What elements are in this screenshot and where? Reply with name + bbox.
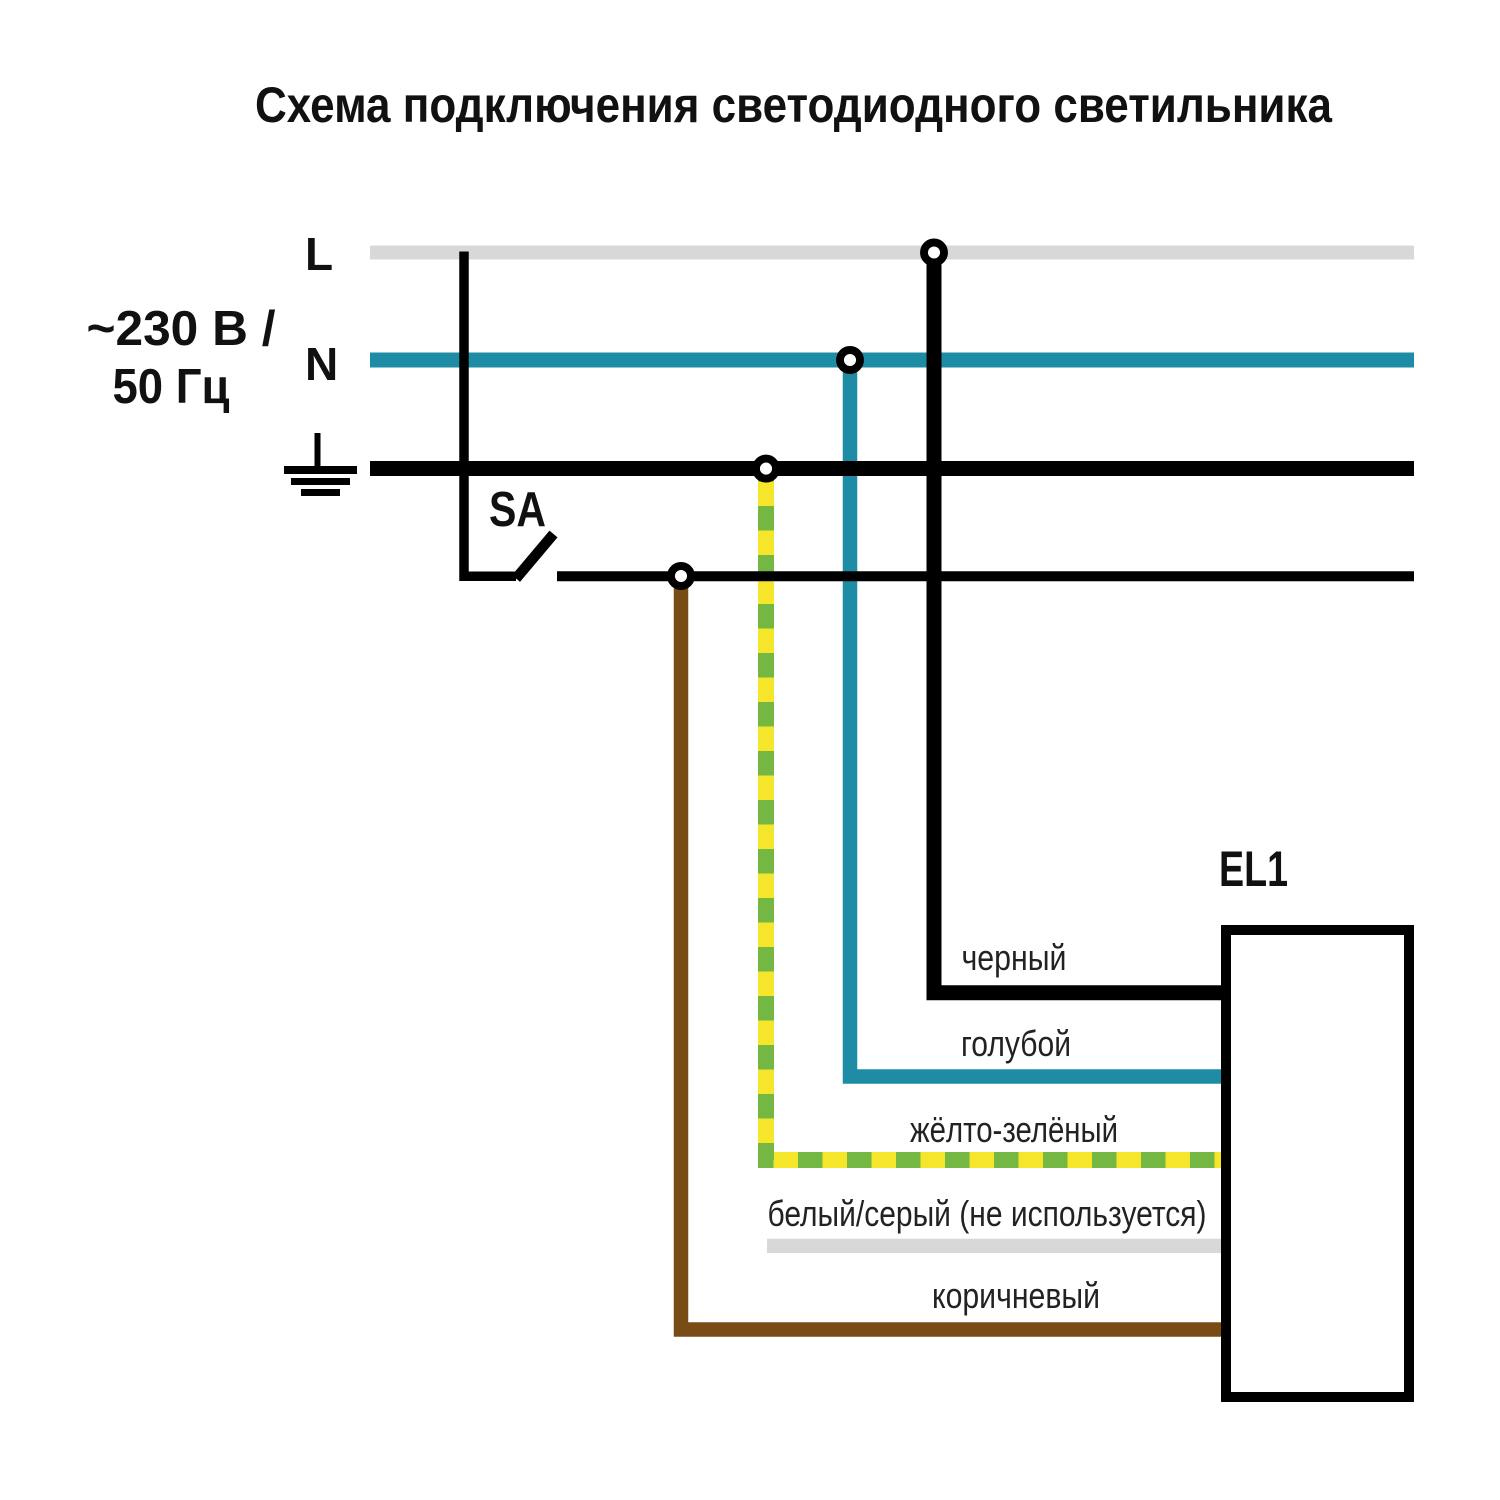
svg-text:EL1: EL1 [1219, 841, 1288, 897]
svg-text:черный: черный [962, 937, 1067, 978]
svg-text:SA: SA [489, 483, 546, 537]
svg-text:жёлто-зелёный: жёлто-зелёный [910, 1109, 1118, 1150]
svg-text:белый/серый (не используется): белый/серый (не используется) [768, 1193, 1207, 1234]
svg-text:коричневый: коричневый [932, 1275, 1100, 1316]
svg-text:N: N [305, 338, 338, 390]
svg-text:L: L [305, 228, 333, 280]
svg-text:голубой: голубой [961, 1023, 1071, 1064]
svg-text:~230 В /: ~230 В / [87, 302, 276, 356]
svg-text:Схема подключения светодиодног: Схема подключения светодиодного светильн… [255, 77, 1333, 133]
svg-text:50 Гц: 50 Гц [113, 360, 230, 414]
